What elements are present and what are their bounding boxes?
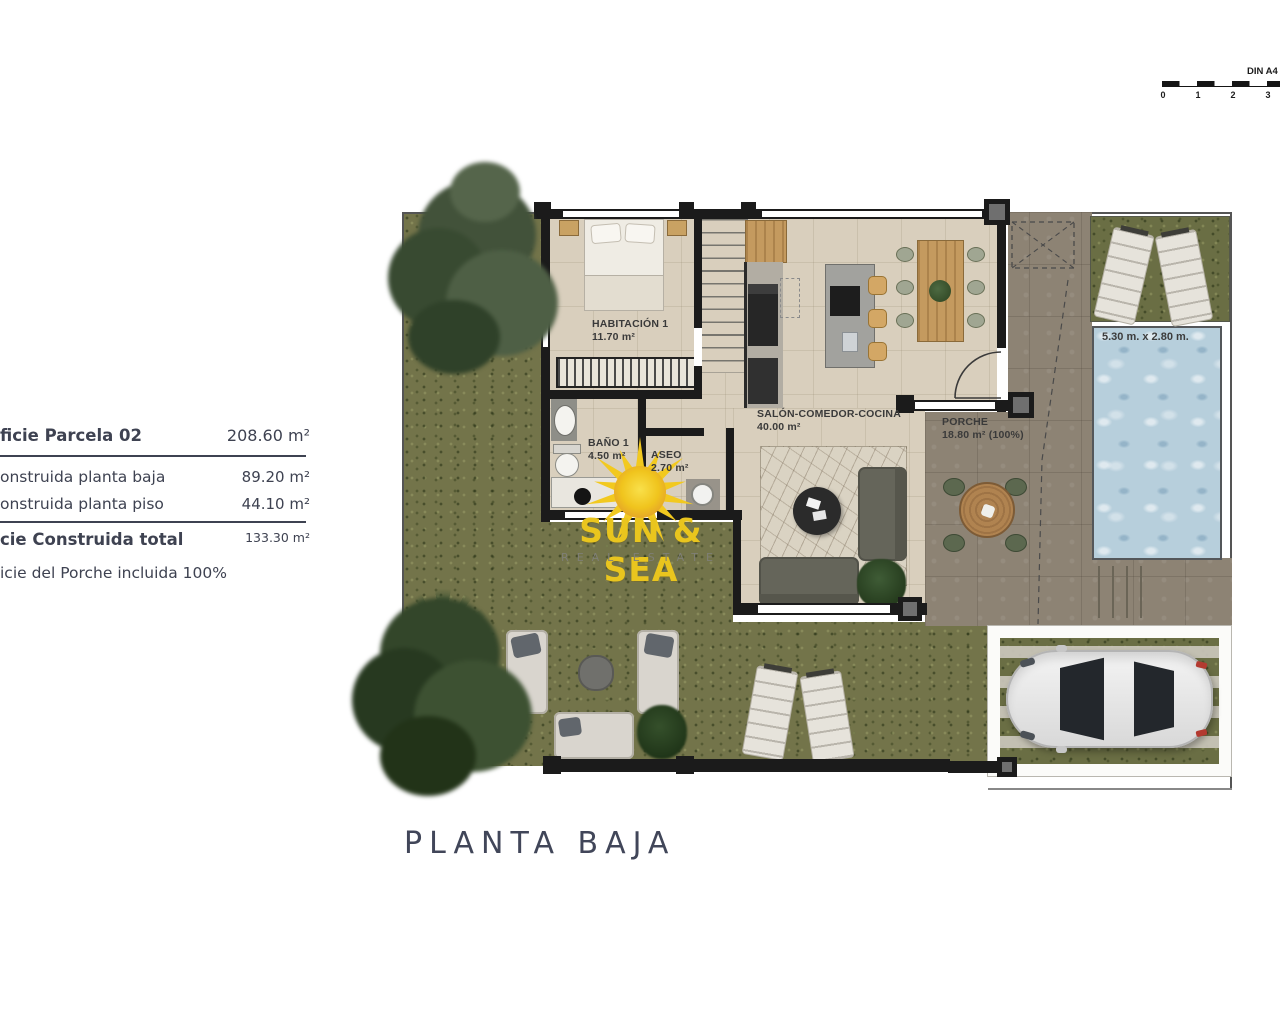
room-name: PORCHE [942, 416, 1024, 429]
room-name: BAÑO 1 [588, 437, 629, 450]
room-name: ASEO [651, 449, 689, 462]
room-area: 4.50 m² [588, 450, 629, 463]
room-area: 40.00 m² [757, 421, 901, 434]
floor-plan-page: DIN A4 0 1 2 3 ficie Parcela 02 208.60 m… [0, 0, 1280, 1024]
room-label-aseo: ASEO 2.70 m² [651, 449, 689, 476]
room-label-bano: BAÑO 1 4.50 m² [588, 437, 629, 464]
entrance-door-arc [955, 352, 1001, 398]
room-name: SALÓN-COMEDOR-COCINA [757, 408, 901, 421]
room-label-porche: PORCHE 18.80 m² (100%) [942, 416, 1024, 443]
overhang-dashed-line [1038, 280, 1068, 624]
room-label-salon: SALÓN-COMEDOR-COCINA 40.00 m² [757, 408, 901, 435]
room-area: 18.80 m² (100%) [942, 429, 1024, 442]
room-label-habitacion: HABITACIÓN 1 11.70 m² [592, 318, 668, 345]
room-area: 11.70 m² [592, 331, 668, 344]
room-name: HABITACIÓN 1 [592, 318, 668, 331]
room-area: 2.70 m² [651, 462, 689, 475]
plan-title: PLANTA BAJA [404, 826, 675, 861]
brand-wordmark: SUN & SEA [545, 511, 737, 589]
pool-dimensions-label: 5.30 m. x 2.80 m. [1102, 331, 1189, 343]
brand-tagline: REAL ESTATE [545, 551, 737, 564]
